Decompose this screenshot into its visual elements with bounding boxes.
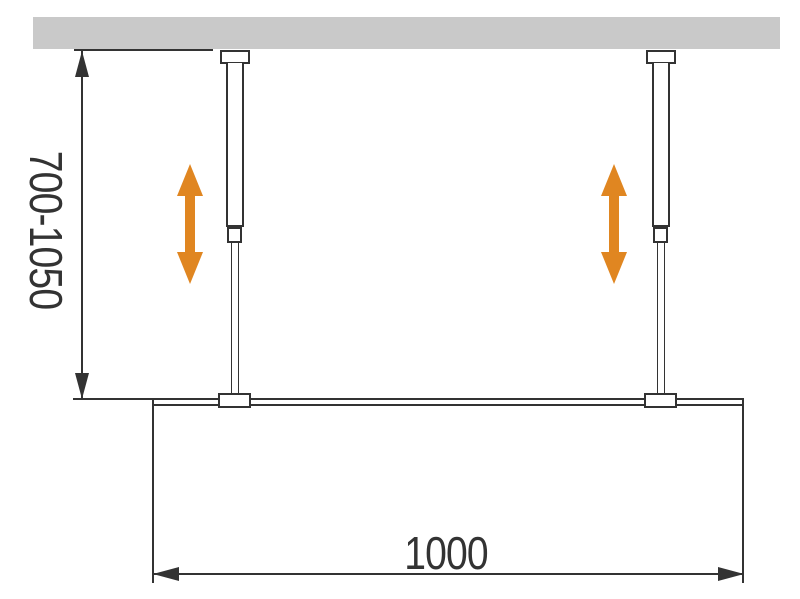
horizontal-dimension-label: 1000: [361, 530, 531, 576]
arrow-head-up: [601, 164, 627, 196]
left-upper-tube: [226, 63, 244, 227]
right-glass-clamp: [644, 393, 677, 408]
right-ceiling-bracket: [646, 50, 676, 64]
vertical-dimension-line: [81, 51, 83, 399]
left-support-rod: [218, 50, 252, 408]
arrowhead-right-icon: [718, 567, 744, 581]
vertical-dimension-label: 700-1050: [26, 145, 66, 315]
right-adjuster-collar: [653, 227, 668, 243]
right-support-rod: [644, 50, 678, 408]
arrowhead-left-icon: [153, 567, 179, 581]
right-upper-tube: [652, 63, 670, 227]
arrowhead-up-icon: [75, 51, 89, 77]
top-extension-line: [74, 49, 213, 51]
arrow-head-down: [177, 252, 203, 284]
left-ceiling-bracket: [220, 50, 250, 64]
arrow-shaft: [185, 194, 195, 254]
left-lower-rod: [231, 243, 239, 393]
left-adjust-double-arrow-icon: [177, 164, 203, 284]
right-adjust-double-arrow-icon: [601, 164, 627, 284]
ceiling-slab: [33, 17, 780, 49]
arrowhead-down-icon: [75, 373, 89, 399]
arrow-head-down: [601, 252, 627, 284]
arrow-head-up: [177, 164, 203, 196]
left-adjuster-collar: [227, 227, 242, 243]
arrow-shaft: [609, 194, 619, 254]
installation-diagram-canvas: 700-1050 1000: [0, 0, 800, 599]
left-glass-clamp: [218, 393, 251, 408]
right-lower-rod: [657, 243, 665, 393]
